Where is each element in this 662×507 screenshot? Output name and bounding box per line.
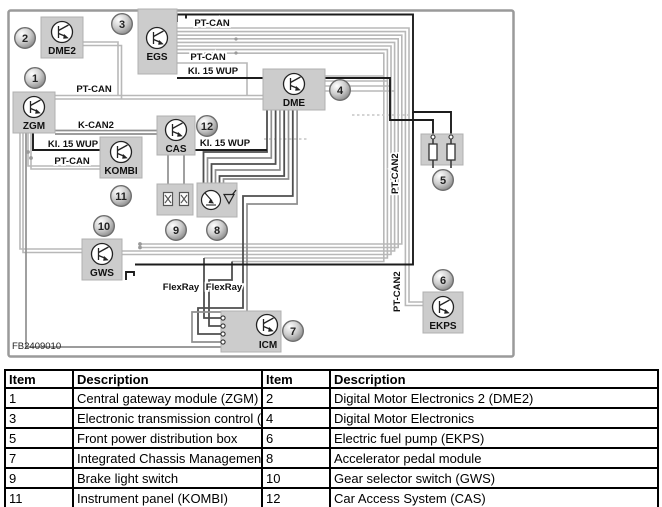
ecu-icon <box>257 315 278 336</box>
legend-header-cell: Item <box>5 370 73 388</box>
module-icm: ICM <box>221 311 281 352</box>
svg-text:7: 7 <box>290 326 296 338</box>
svg-text:5: 5 <box>440 175 446 187</box>
ecu-icon <box>24 97 45 118</box>
legend-item-cell: 9 <box>5 468 73 488</box>
legend-row: 9Brake light switch10Gear selector switc… <box>5 468 658 488</box>
ecu-icon <box>111 142 132 163</box>
module-egs: EGS <box>138 9 177 74</box>
accelerator-pedal-module <box>197 183 237 217</box>
legend-desc-cell: Integrated Chassis Management (ICM) <box>73 448 262 468</box>
callout-4: 4 <box>330 80 351 101</box>
svg-text:10: 10 <box>98 221 110 233</box>
svg-text:11: 11 <box>115 191 127 203</box>
callout-11: 11 <box>111 186 132 207</box>
callout-6: 6 <box>433 270 454 291</box>
switch-icon <box>164 193 173 206</box>
svg-text:6: 6 <box>440 275 446 287</box>
bus-label-pt-can-zgm: PT-CAN <box>76 84 112 95</box>
legend-item-cell: 10 <box>262 468 330 488</box>
ecu-icon <box>433 297 454 318</box>
module-label: EGS <box>146 52 167 63</box>
legend-desc-cell: Digital Motor Electronics 2 (DME2) <box>330 388 658 408</box>
module-gws: GWS <box>82 239 122 280</box>
legend-item-cell: 3 <box>5 408 73 428</box>
legend-header-cell: Description <box>73 370 262 388</box>
bus-label-flexray-1: FlexRay <box>163 282 200 293</box>
callout-1: 1 <box>25 68 46 89</box>
bus-label-ki15-left: KI. 15 WUP <box>48 139 99 150</box>
callout-12: 12 <box>197 116 218 137</box>
legend-table-body: 1Central gateway module (ZGM)2Digital Mo… <box>5 388 658 507</box>
callout-10: 10 <box>94 216 115 237</box>
bus-diagram: ZGM DME2 EGS DME KOMBI CAS GWS EKPS <box>0 0 662 366</box>
bus-label-ki15-cas: KI. 15 WUP <box>200 138 251 149</box>
module-label: EKPS <box>429 321 457 332</box>
module-kombi: KOMBI <box>100 137 142 178</box>
bus-label-pt-can-top-2: PT-CAN <box>190 52 226 63</box>
legend-item-cell: 5 <box>5 428 73 448</box>
module-cas: CAS <box>157 116 195 155</box>
ecu-icon <box>284 74 305 95</box>
module-dme2: DME2 <box>41 17 83 58</box>
legend-item-cell: 1 <box>5 388 73 408</box>
legend-item-cell: 6 <box>262 428 330 448</box>
switch-icon <box>180 193 189 206</box>
ecu-icon <box>166 120 187 141</box>
module-label: DME2 <box>48 46 76 57</box>
svg-text:4: 4 <box>337 85 344 97</box>
legend-desc-cell: Digital Motor Electronics <box>330 408 658 428</box>
module-label: ZGM <box>23 121 45 132</box>
callout-9: 9 <box>166 220 187 241</box>
fuse-icon <box>429 144 437 160</box>
legend-desc-cell: Instrument panel (KOMBI) <box>73 488 262 507</box>
callout-8: 8 <box>207 220 228 241</box>
legend-item-cell: 8 <box>262 448 330 468</box>
page: ZGM DME2 EGS DME KOMBI CAS GWS EKPS <box>0 0 662 507</box>
legend-table-head: ItemDescriptionItemDescription <box>5 370 658 388</box>
legend-table: ItemDescriptionItemDescription 1Central … <box>4 369 659 507</box>
legend-desc-cell: Brake light switch <box>73 468 262 488</box>
legend-desc-cell: Electronic transmission control (EGS) <box>73 408 262 428</box>
module-dme: DME <box>263 69 325 110</box>
legend-desc-cell: Accelerator pedal module <box>330 448 658 468</box>
legend-row: 5Front power distribution box6Electric f… <box>5 428 658 448</box>
callout-2: 2 <box>15 28 36 49</box>
legend-desc-cell: Central gateway module (ZGM) <box>73 388 262 408</box>
legend-row: 7Integrated Chassis Management (ICM)8Acc… <box>5 448 658 468</box>
module-zgm: ZGM <box>13 92 55 133</box>
legend-row: 11Instrument panel (KOMBI)12Car Access S… <box>5 488 658 507</box>
legend-desc-cell: Front power distribution box <box>73 428 262 448</box>
module-label: DME <box>283 98 306 109</box>
bus-label-k-can2: K-CAN2 <box>78 120 114 131</box>
svg-text:12: 12 <box>201 121 213 133</box>
legend-item-cell: 11 <box>5 488 73 507</box>
legend-header-cell: Item <box>262 370 330 388</box>
legend-item-cell: 12 <box>262 488 330 507</box>
svg-text:9: 9 <box>173 225 179 237</box>
power-distribution-box <box>421 134 463 168</box>
legend-item-cell: 2 <box>262 388 330 408</box>
legend-desc-cell: Electric fuel pump (EKPS) <box>330 428 658 448</box>
svg-text:8: 8 <box>214 225 220 237</box>
ecu-icon <box>52 22 73 43</box>
bus-label-pt-can-kombi: PT-CAN <box>54 156 90 167</box>
module-label: ICM <box>259 340 277 351</box>
legend-item-cell: 7 <box>5 448 73 468</box>
legend-header-cell: Description <box>330 370 658 388</box>
legend-desc-cell: Gear selector switch (GWS) <box>330 468 658 488</box>
callout-5: 5 <box>433 170 454 191</box>
module-label: GWS <box>90 268 114 279</box>
legend-row: 1Central gateway module (ZGM)2Digital Mo… <box>5 388 658 408</box>
callout-3: 3 <box>112 14 133 35</box>
svg-text:3: 3 <box>119 19 125 31</box>
bus-label-pt-can-top-1: PT-CAN <box>194 18 230 29</box>
bus-label-pt-can2-lower: PT-CAN2 <box>392 271 403 312</box>
callout-7: 7 <box>283 321 304 342</box>
legend-row: 3Electronic transmission control (EGS)4D… <box>5 408 658 428</box>
bus-label-ki15-top: KI. 15 WUP <box>188 66 239 77</box>
figure-id: FB2409010 <box>12 341 61 352</box>
module-label: CAS <box>165 144 186 155</box>
legend-item-cell: 4 <box>262 408 330 428</box>
fuse-icon <box>447 144 455 160</box>
ecu-icon <box>92 244 113 265</box>
svg-text:1: 1 <box>32 73 38 85</box>
legend-desc-cell: Car Access System (CAS) <box>330 488 658 507</box>
bus-label-pt-can2-upper: PT-CAN2 <box>390 153 401 194</box>
ecu-icon <box>147 28 168 49</box>
brake-light-switch <box>157 184 193 215</box>
svg-text:2: 2 <box>22 33 28 45</box>
module-ekps: EKPS <box>423 292 463 333</box>
bus-label-flexray-2: FlexRay <box>206 282 243 293</box>
module-label: KOMBI <box>104 166 138 177</box>
